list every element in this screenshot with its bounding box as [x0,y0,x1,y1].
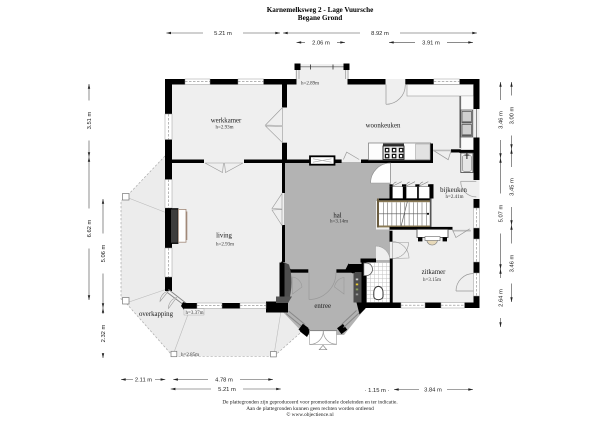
svg-text:3.51 m: 3.51 m [87,111,93,129]
svg-text:5.06 m: 5.06 m [101,244,107,262]
svg-text:3.46 m: 3.46 m [510,254,516,272]
svg-text:4.78 m: 4.78 m [215,378,233,384]
svg-text:3.46 m: 3.46 m [499,111,505,129]
svg-text:werkkamer: werkkamer [211,117,242,124]
svg-text:woonkeuken: woonkeuken [366,123,401,130]
svg-text:h=3.14m: h=3.14m [330,219,348,224]
svg-text:6.62 m: 6.62 m [87,219,93,237]
svg-text:bijkeuken: bijkeuken [440,187,467,194]
svg-text:Begane Grond: Begane Grond [298,14,342,22]
svg-text:3.45 m: 3.45 m [510,178,516,196]
svg-text:© www.objectience.nl: © www.objectience.nl [286,411,334,418]
svg-text:entree: entree [314,303,331,310]
svg-text:overkapping: overkapping [139,311,174,318]
svg-text:3.84 m: 3.84 m [424,388,442,394]
svg-text:h=2.89m: h=2.89m [301,82,319,87]
svg-text:zitkamer: zitkamer [422,269,447,276]
svg-text:3.00 m: 3.00 m [510,106,516,124]
svg-text:Karnemelksweg 2 - Lage Vuursch: Karnemelksweg 2 - Lage Vuursche [267,6,374,14]
svg-text:h=3.15m: h=3.15m [423,278,441,283]
svg-text:5.07 m: 5.07 m [499,204,505,222]
svg-text:living: living [216,233,232,240]
svg-text:De plattegronden zijn geproduc: De plattegronden zijn geproduceerd voor … [222,400,397,406]
svg-text:h=2.41m: h=2.41m [446,195,464,200]
svg-text:h=2.93m: h=2.93m [216,243,234,248]
svg-text:3.91 m: 3.91 m [422,40,440,46]
svg-text:5.21 m: 5.21 m [214,31,232,37]
svg-text:8.92 m: 8.92 m [371,31,389,37]
svg-text:· 1.15 m ·: · 1.15 m · [365,388,390,394]
svg-text:2.32 m: 2.32 m [101,324,107,342]
svg-text:h=2.85m: h=2.85m [181,353,199,358]
svg-text:5.21 m: 5.21 m [218,387,236,393]
svg-text:2.64 m: 2.64 m [499,289,505,307]
svg-text:2.06 m: 2.06 m [312,40,330,46]
svg-text:hal: hal [333,212,341,219]
svg-text:2.11 m: 2.11 m [135,378,152,384]
svg-text:h=3.37m: h=3.37m [186,311,204,316]
svg-text:h=2.93m: h=2.93m [216,125,234,130]
